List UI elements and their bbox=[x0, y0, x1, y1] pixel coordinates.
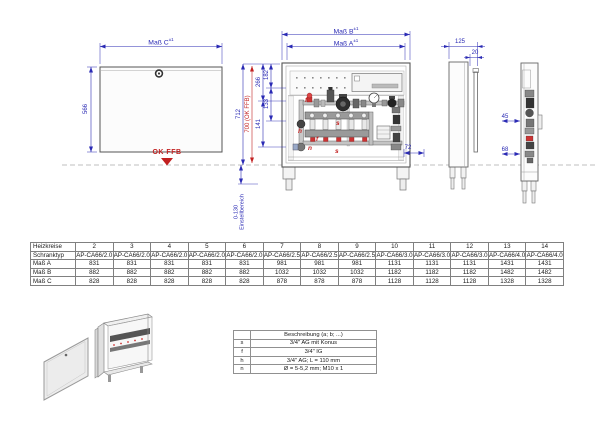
table-cell: 1182 bbox=[413, 268, 451, 277]
table-cell: 882 bbox=[76, 268, 114, 277]
table-cell: 981 bbox=[338, 260, 376, 269]
dim-125-label: 125 bbox=[445, 39, 475, 45]
dim-72-label: 72 bbox=[399, 145, 417, 151]
table-cell: AP-CA66/2.0 bbox=[226, 251, 264, 260]
table-cell: 1128 bbox=[451, 277, 489, 286]
table-cell: 1182 bbox=[376, 268, 414, 277]
dim-266-label: 266 bbox=[256, 77, 262, 87]
table-cell: 1131 bbox=[451, 260, 489, 269]
table-cell: 828 bbox=[226, 277, 264, 286]
dim-141-label: 141 bbox=[256, 119, 262, 129]
table-cell: 12 bbox=[451, 243, 489, 252]
row-label: Maß A bbox=[31, 260, 76, 269]
row-label: Maß C bbox=[31, 277, 76, 286]
table-cell: 1032 bbox=[301, 268, 339, 277]
legend-row: f3/4" IG bbox=[234, 348, 377, 357]
table-cell: 831 bbox=[113, 260, 151, 269]
table-cell: 878 bbox=[301, 277, 339, 286]
table-cell: 13 bbox=[488, 243, 526, 252]
legend-title: Beschreibung (a; b; ...) bbox=[251, 331, 377, 340]
table-cell: 1128 bbox=[413, 277, 451, 286]
table-row: SchranktypAP-CA66/2.0AP-CA66/2.0AP-CA66/… bbox=[31, 251, 564, 260]
table-cell: 3 bbox=[113, 243, 151, 252]
component-label-s2: s bbox=[335, 149, 339, 156]
table-cell: 9 bbox=[338, 243, 376, 252]
size-table: Heizkreise234567891011121314SchranktypAP… bbox=[30, 242, 564, 286]
legend-table: Beschreibung (a; b; ...) s3/4" AG mit Ko… bbox=[233, 330, 377, 374]
dim-mass-c-label: Maß C±1 bbox=[101, 38, 221, 47]
table-cell: 828 bbox=[151, 277, 189, 286]
row-label: Heizkreise bbox=[31, 243, 76, 252]
dim-712-label: 712 bbox=[236, 109, 242, 119]
table-cell: 4 bbox=[151, 243, 189, 252]
dim-566-label: 566 bbox=[83, 104, 89, 114]
legend-desc: 3/4" AG; L = 110 mm bbox=[251, 356, 377, 365]
size-table-body: Heizkreise234567891011121314SchranktypAP… bbox=[31, 243, 564, 286]
component-label-f1: f bbox=[305, 98, 307, 105]
component-label-s1: s bbox=[336, 121, 340, 128]
table-cell: 1032 bbox=[263, 268, 301, 277]
table-cell: AP-CA66/3.0 bbox=[413, 251, 451, 260]
table-cell: AP-CA66/2.0 bbox=[76, 251, 114, 260]
table-cell: 1431 bbox=[526, 260, 564, 269]
table-cell: 1482 bbox=[526, 268, 564, 277]
table-cell: 882 bbox=[188, 268, 226, 277]
table-cell: AP-CA66/2.5 bbox=[338, 251, 376, 260]
table-cell: 1131 bbox=[413, 260, 451, 269]
table-cell: 831 bbox=[226, 260, 264, 269]
table-row: Maß A83183183183183198198198111311131113… bbox=[31, 260, 564, 269]
table-row: Maß C82882882882882887887887811281128112… bbox=[31, 277, 564, 286]
table-cell: 882 bbox=[113, 268, 151, 277]
legend-key: s bbox=[234, 339, 251, 348]
table-cell: AP-CA66/3.0 bbox=[376, 251, 414, 260]
table-cell: 828 bbox=[113, 277, 151, 286]
table-cell: 981 bbox=[301, 260, 339, 269]
table-cell: 981 bbox=[263, 260, 301, 269]
ok-ffb-label: OK FFB bbox=[145, 149, 189, 156]
table-cell: 882 bbox=[151, 268, 189, 277]
component-label-n: n bbox=[308, 146, 312, 153]
table-cell: 882 bbox=[226, 268, 264, 277]
table-cell: 14 bbox=[526, 243, 564, 252]
table-cell: 1328 bbox=[488, 277, 526, 286]
table-cell: 1032 bbox=[338, 268, 376, 277]
table-cell: 1131 bbox=[376, 260, 414, 269]
dim-133-label: 133 bbox=[264, 99, 270, 109]
legend-header-row: Beschreibung (a; b; ...) bbox=[234, 331, 377, 340]
table-cell: 5 bbox=[188, 243, 226, 252]
dim-20-label: 20 bbox=[465, 50, 485, 56]
table-cell: 10 bbox=[376, 243, 414, 252]
table-cell: 831 bbox=[188, 260, 226, 269]
table-cell: AP-CA66/2.0 bbox=[188, 251, 226, 260]
legend-desc: 3/4" IG bbox=[251, 348, 377, 357]
table-cell: 831 bbox=[76, 260, 114, 269]
dim-68-label: 68 bbox=[498, 147, 512, 153]
dim-700-okffb-label: 700 (OK FFB) bbox=[245, 95, 251, 132]
table-cell: 7 bbox=[263, 243, 301, 252]
table-row: Heizkreise234567891011121314 bbox=[31, 243, 564, 252]
legend-desc: 3/4" AG mit Konus bbox=[251, 339, 377, 348]
dim-45-label: 45 bbox=[498, 114, 512, 120]
table-cell: AP-CA66/4.0 bbox=[526, 251, 564, 260]
table-cell: 6 bbox=[226, 243, 264, 252]
table-cell: 1182 bbox=[451, 268, 489, 277]
adjust-range-label: 0-130Einstellbereich bbox=[235, 194, 246, 230]
table-cell: 878 bbox=[338, 277, 376, 286]
table-cell: AP-CA66/2.0 bbox=[151, 251, 189, 260]
legend-row: nØ = 5-5,2 mm; M10 x 1 bbox=[234, 365, 377, 374]
table-cell: AP-CA66/2.0 bbox=[113, 251, 151, 260]
dim-mass-a-label: Maß A±1 bbox=[287, 39, 405, 48]
table-cell: 11 bbox=[413, 243, 451, 252]
table-cell: AP-CA66/3.0 bbox=[451, 251, 489, 260]
dim-mass-b-label: Maß B±1 bbox=[282, 27, 410, 36]
table-cell: 878 bbox=[263, 277, 301, 286]
table-cell: AP-CA66/2.5 bbox=[263, 251, 301, 260]
legend-header-spacer bbox=[234, 331, 251, 340]
table-cell: 828 bbox=[188, 277, 226, 286]
legend-row: h3/4" AG; L = 110 mm bbox=[234, 356, 377, 365]
table-cell: 1482 bbox=[488, 268, 526, 277]
table-cell: 831 bbox=[151, 260, 189, 269]
table-cell: AP-CA66/4.0 bbox=[488, 251, 526, 260]
row-label: Maß B bbox=[31, 268, 76, 277]
legend-key: h bbox=[234, 356, 251, 365]
legend-desc: Ø = 5-5,2 mm; M10 x 1 bbox=[251, 365, 377, 374]
table-cell: 1328 bbox=[526, 277, 564, 286]
technical-drawing-sheet: Maß C±1 566 OK FFB Maß B±1 Maß A±1 712 7… bbox=[0, 0, 600, 427]
table-row: Maß B88288288288288210321032103211821182… bbox=[31, 268, 564, 277]
legend-body: s3/4" AG mit Konusf3/4" IGh3/4" AG; L = … bbox=[234, 339, 377, 373]
table-cell: 2 bbox=[76, 243, 114, 252]
component-label-f2: f bbox=[316, 137, 318, 144]
table-cell: AP-CA66/2.5 bbox=[301, 251, 339, 260]
row-label: Schranktyp bbox=[31, 251, 76, 260]
legend-row: s3/4" AG mit Konus bbox=[234, 339, 377, 348]
dim-182-label: 182 bbox=[264, 70, 270, 80]
table-cell: 828 bbox=[76, 277, 114, 286]
component-label-h: h bbox=[298, 129, 302, 136]
legend-key: f bbox=[234, 348, 251, 357]
table-cell: 1128 bbox=[376, 277, 414, 286]
legend-key: n bbox=[234, 365, 251, 374]
table-cell: 8 bbox=[301, 243, 339, 252]
table-cell: 1431 bbox=[488, 260, 526, 269]
